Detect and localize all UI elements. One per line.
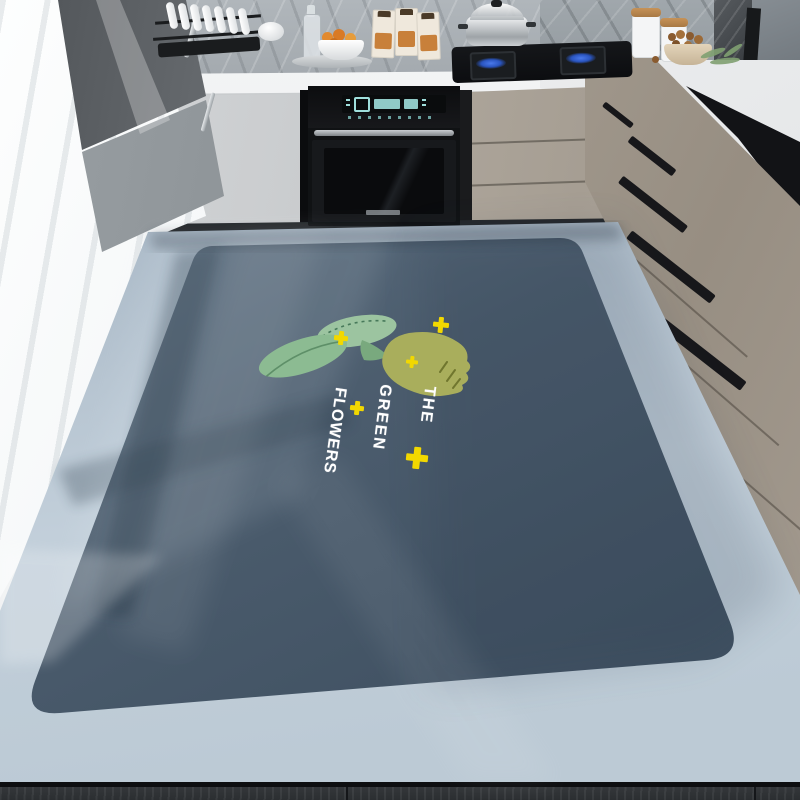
white-bowl (258, 22, 284, 41)
oven-display-digits (404, 99, 418, 109)
oven-display-dots (422, 99, 426, 109)
wood-plank-seam (346, 787, 348, 800)
kitchen-scene-photo: THE GREEN FLOWERS (0, 0, 800, 800)
pot-lid-knob (491, 0, 502, 7)
nut (694, 35, 703, 44)
built-in-oven (308, 86, 460, 226)
oven-door-window (324, 148, 444, 214)
storage-canister (632, 14, 660, 58)
oven-display-dots (346, 99, 350, 109)
dark-wood-floor (0, 787, 800, 800)
nut (652, 56, 659, 63)
oven-brand-plate (366, 210, 400, 215)
wood-plank-seam (754, 787, 756, 800)
pot-handle (526, 22, 536, 27)
oven-display (342, 95, 446, 113)
gas-stove (451, 41, 632, 83)
mat-text-the: THE (417, 385, 438, 425)
nut (686, 32, 694, 40)
pot-handle (458, 24, 468, 29)
oven-display-icon (354, 97, 370, 112)
juice-carton (395, 8, 418, 56)
oven-handle (314, 130, 454, 136)
oven-button-row (348, 116, 432, 119)
oven-display-digits (374, 99, 400, 109)
nut (676, 30, 685, 39)
juice-carton (416, 12, 441, 61)
juice-carton (371, 10, 396, 59)
glass-carafe (303, 14, 321, 60)
steamer-pot (466, 16, 528, 46)
